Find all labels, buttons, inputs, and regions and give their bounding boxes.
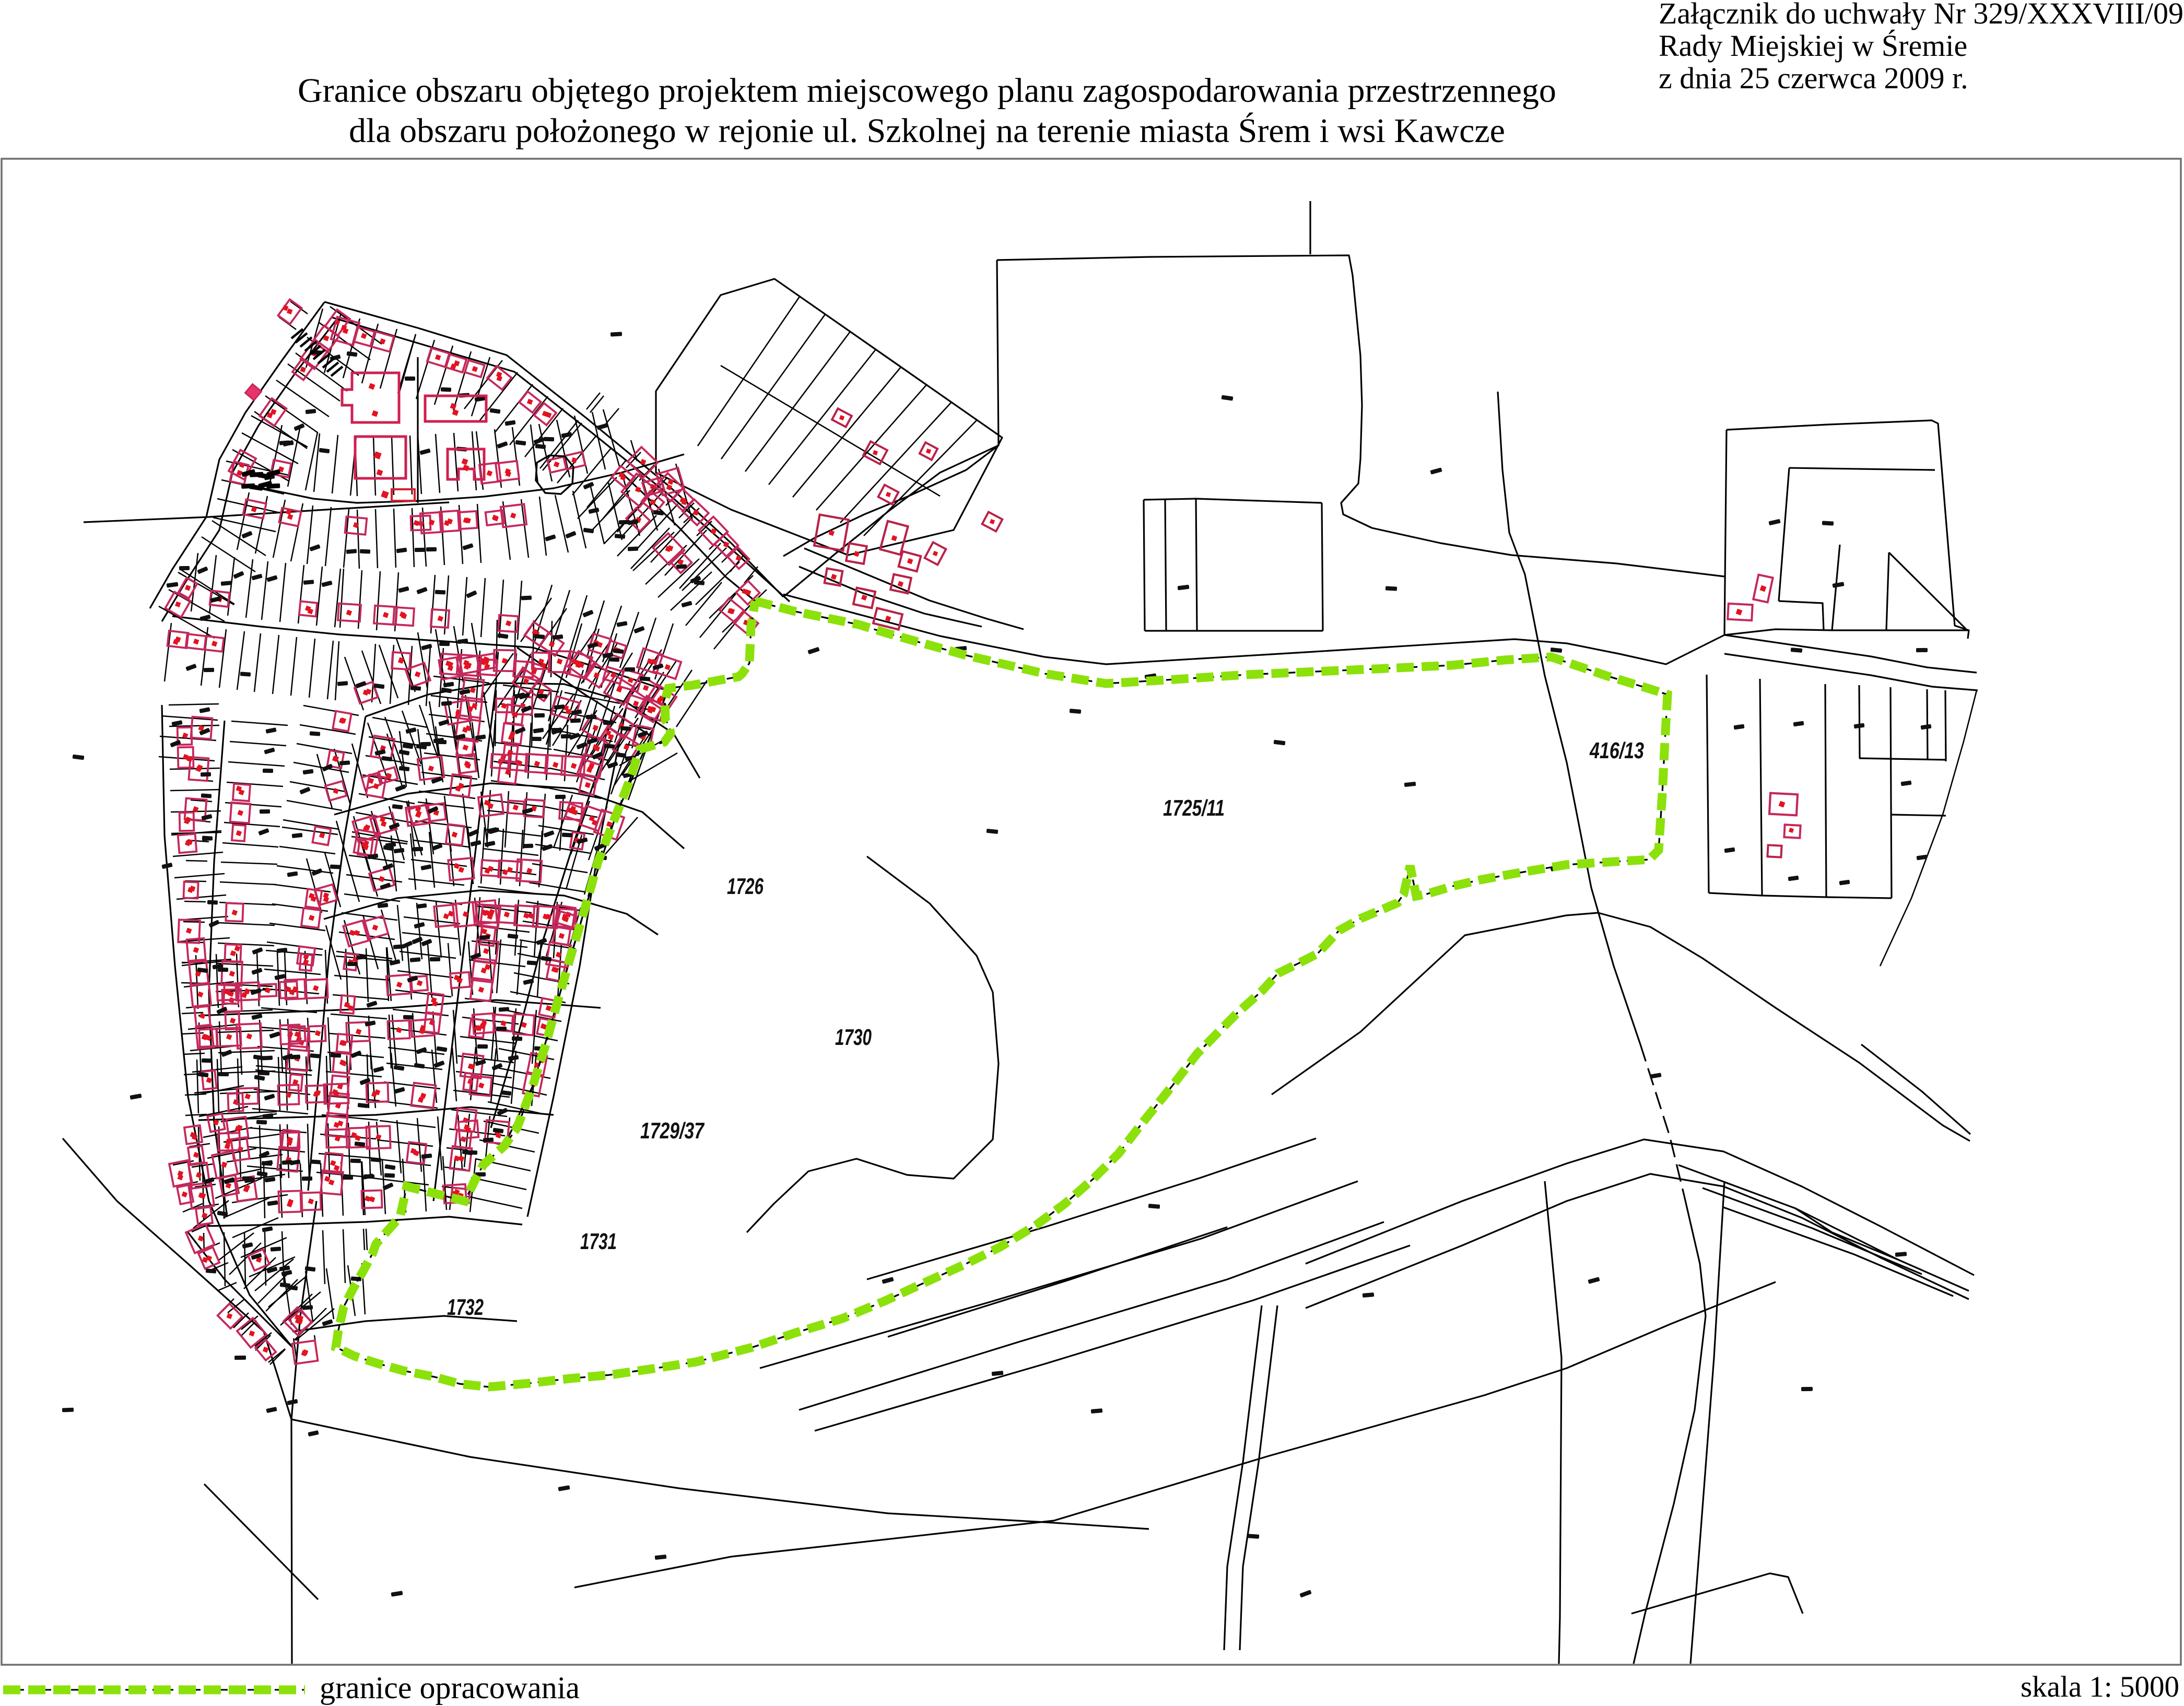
svg-text:1731: 1731 xyxy=(580,1229,617,1254)
svg-text:1730: 1730 xyxy=(835,1025,872,1050)
svg-text:1726: 1726 xyxy=(727,874,764,899)
svg-text:1732: 1732 xyxy=(447,1295,484,1320)
svg-text:1725/11: 1725/11 xyxy=(1163,795,1225,821)
svg-text:416/13: 416/13 xyxy=(1589,738,1644,763)
svg-text:1729/37: 1729/37 xyxy=(640,1118,705,1144)
